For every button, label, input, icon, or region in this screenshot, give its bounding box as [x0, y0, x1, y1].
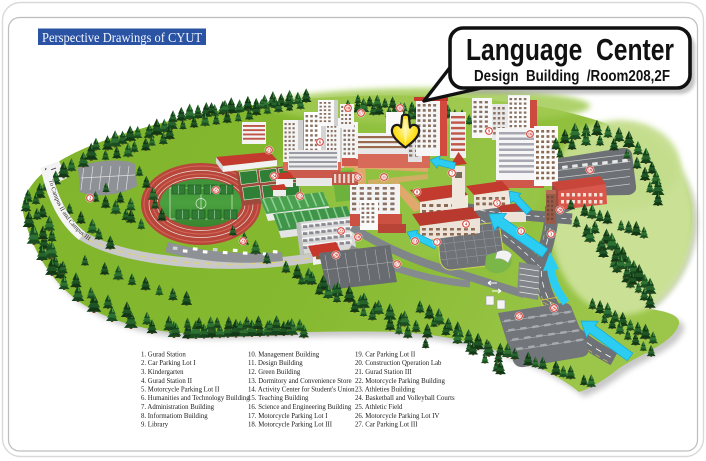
svg-text:10. Management Building: 10. Management Building: [248, 352, 320, 359]
svg-text:13. Dormitory and Convenience: 13. Dormitory and Convenience Store: [248, 378, 352, 385]
svg-text:25: 25: [214, 188, 218, 193]
svg-text:3. Kindergarten: 3. Kindergarten: [141, 369, 184, 376]
svg-text:8: 8: [416, 190, 418, 195]
svg-text:6. Humanities and Technology B: 6. Humanities and Technology Building: [141, 395, 250, 402]
svg-text:26. Motorcycle Parking Lot IV: 26. Motorcycle Parking Lot IV: [355, 413, 439, 420]
svg-text:14. Activity Center for Studen: 14. Activity Center for Student's Union: [248, 387, 355, 394]
svg-text:15: 15: [356, 175, 360, 180]
svg-text:12: 12: [298, 194, 302, 199]
svg-text:24. Basketball and Volleyball: 24. Basketball and Volleyball Courts: [355, 395, 455, 402]
svg-text:17. Motorcycle Parking Lot I: 17. Motorcycle Parking Lot I: [248, 413, 328, 420]
svg-text:Design Building /Room208,2F: Design Building /Room208,2F: [474, 68, 670, 85]
svg-text:22: 22: [339, 229, 343, 234]
svg-text:27: 27: [517, 314, 521, 319]
svg-text:5: 5: [496, 201, 498, 206]
svg-text:9: 9: [488, 129, 490, 134]
svg-text:18. Motorcycle Parking Lot III: 18. Motorcycle Parking Lot III: [248, 422, 333, 429]
svg-text:1: 1: [520, 229, 522, 234]
svg-text:17: 17: [359, 111, 363, 116]
svg-text:11: 11: [398, 106, 402, 111]
svg-text:4. Gurad Station II: 4. Gurad Station II: [141, 378, 193, 385]
svg-text:3: 3: [550, 232, 552, 237]
svg-text:18: 18: [356, 235, 360, 240]
svg-text:Language Center: Language Center: [466, 32, 674, 67]
svg-text:27. Car Parking Lot III: 27. Car Parking Lot III: [355, 422, 418, 429]
svg-text:7: 7: [451, 171, 453, 176]
svg-text:23. Athleties Building: 23. Athleties Building: [355, 387, 415, 394]
svg-text:9. Library: 9. Library: [141, 422, 169, 429]
svg-text:11: 11: [382, 175, 386, 180]
svg-text:8. Informatiom Building: 8. Informatiom Building: [141, 413, 208, 420]
svg-text:7: 7: [436, 240, 438, 245]
svg-text:21. Gurad Station III: 21. Gurad Station III: [355, 369, 412, 376]
svg-text:Perspective Drawings of CYUT: Perspective Drawings of CYUT: [42, 30, 202, 45]
svg-text:10: 10: [346, 106, 350, 111]
svg-text:19: 19: [588, 168, 592, 173]
svg-text:20: 20: [334, 253, 338, 258]
svg-text:6: 6: [319, 140, 321, 145]
svg-text:25. Athletic Field: 25. Athletic Field: [355, 404, 403, 411]
svg-text:16: 16: [528, 132, 532, 137]
svg-text:11. Design Building: 11. Design Building: [248, 360, 303, 367]
svg-text:20. Construction Qperation Lab: 20. Construction Qperation Lab: [355, 360, 442, 367]
svg-text:20: 20: [558, 208, 562, 213]
svg-text:23: 23: [267, 148, 271, 153]
svg-text:2. Car Parking Lot I: 2. Car Parking Lot I: [141, 360, 196, 367]
svg-text:13: 13: [413, 239, 417, 244]
svg-text:12. Green Building: 12. Green Building: [248, 369, 301, 376]
svg-text:17: 17: [395, 262, 399, 267]
svg-text:23: 23: [241, 239, 245, 244]
svg-text:19. Car Parking Lot II: 19. Car Parking Lot II: [355, 352, 416, 359]
svg-text:1. Gurad Station: 1. Gurad Station: [141, 352, 186, 359]
svg-text:7. Administration Building: 7. Administration Building: [141, 404, 215, 411]
svg-text:15. Teaching Building: 15. Teaching Building: [248, 395, 309, 402]
svg-text:5. Motorcycle Parking Lot II: 5. Motorcycle Parking Lot II: [141, 387, 220, 394]
svg-text:22. Motorcycle Parking Buildin: 22. Motorcycle Parking Building: [355, 378, 445, 385]
svg-text:2: 2: [89, 196, 91, 201]
svg-text:16. Science and Engineering Bu: 16. Science and Engineering Building: [248, 404, 352, 411]
svg-text:26: 26: [552, 306, 556, 311]
